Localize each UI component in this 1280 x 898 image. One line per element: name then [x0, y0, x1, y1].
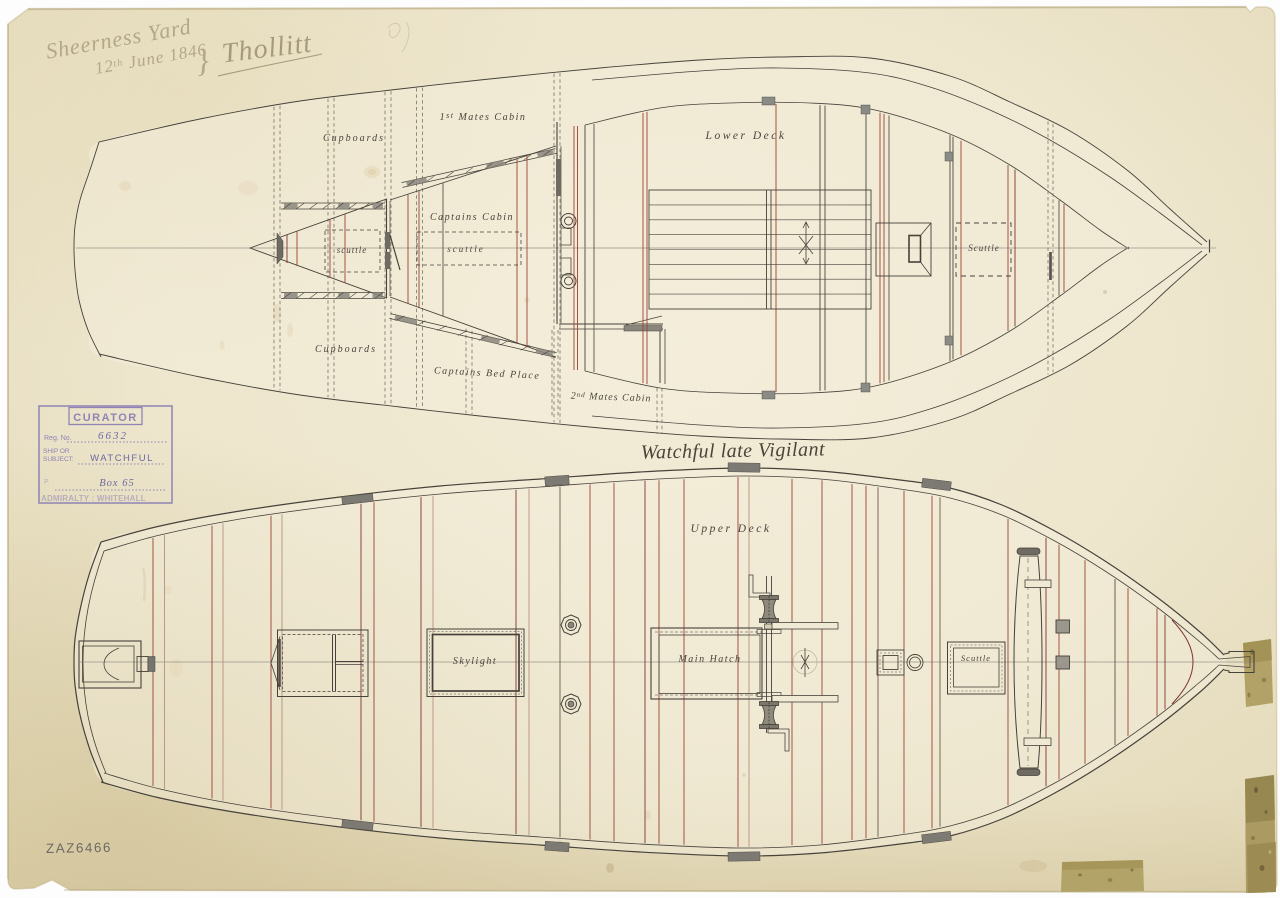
svg-text:6632: 6632	[98, 430, 128, 442]
svg-text:SHIP OR: SHIP OR	[43, 448, 70, 455]
svg-text:Watchful late Vigilant: Watchful late Vigilant	[641, 438, 826, 463]
svg-text:P: P	[44, 479, 49, 486]
svg-text:Box 65: Box 65	[99, 478, 134, 489]
svg-text:CURATOR: CURATOR	[73, 412, 137, 424]
svg-text:Upper Deck: Upper Deck	[691, 523, 772, 535]
svg-text:Cupboards: Cupboards	[315, 344, 377, 355]
svg-text:Skylight: Skylight	[453, 656, 497, 667]
svg-text:scuttle: scuttle	[447, 244, 485, 254]
svg-text:Scuttle: Scuttle	[968, 243, 1000, 253]
svg-text:Lower Deck: Lower Deck	[705, 130, 787, 142]
svg-text:SUBJECT:: SUBJECT:	[43, 456, 74, 463]
svg-text:WATCHFUL: WATCHFUL	[90, 453, 154, 464]
svg-text:ADMIRALTY : WHITEHALL: ADMIRALTY : WHITEHALL	[41, 494, 146, 503]
svg-text:ZAZ6466: ZAZ6466	[46, 840, 112, 856]
svg-text:Cupboards: Cupboards	[323, 133, 385, 144]
svg-text:Scuttle: Scuttle	[961, 653, 991, 663]
svg-text:Reg. No.: Reg. No.	[44, 435, 72, 442]
svg-text:scuttle: scuttle	[337, 245, 368, 255]
svg-text:Main Hatch: Main Hatch	[677, 654, 741, 665]
svg-text:Captains Cabin: Captains Cabin	[430, 212, 514, 223]
